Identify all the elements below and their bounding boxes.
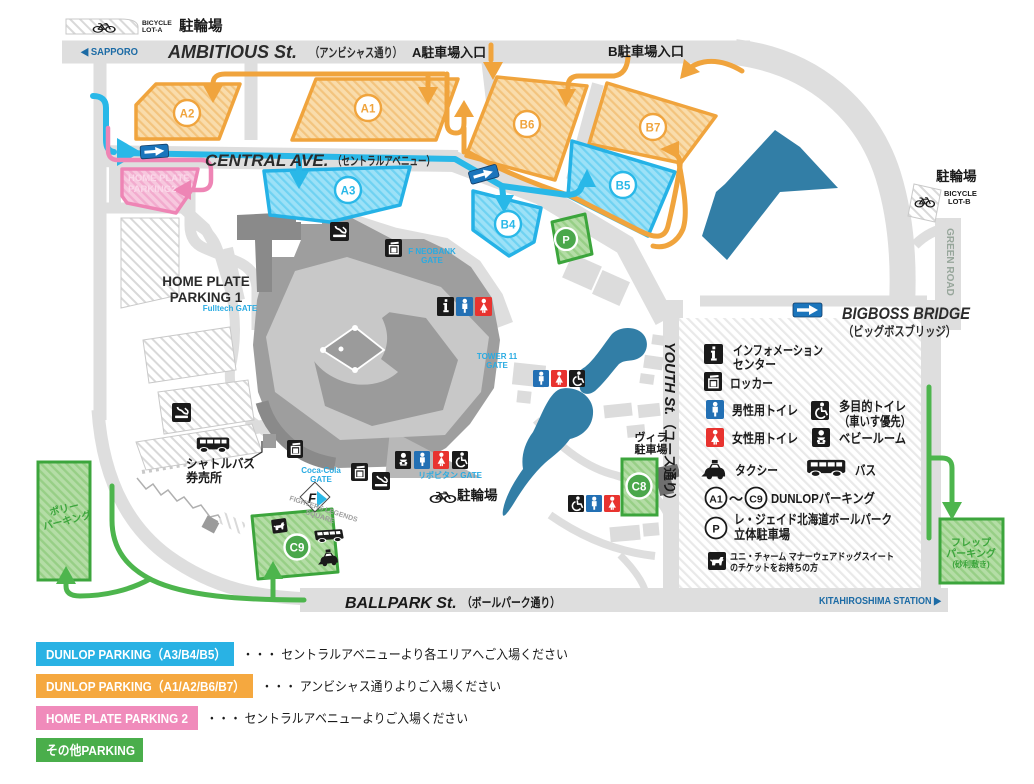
svg-text:GATE: GATE <box>421 256 443 265</box>
svg-text:バス: バス <box>855 463 876 478</box>
svg-text:A2: A2 <box>180 109 195 121</box>
svg-text:（ビッグボスブリッジ）: （ビッグボスブリッジ） <box>843 324 956 339</box>
svg-text:B6: B6 <box>520 120 535 132</box>
svg-text:CENTRAL AVE.: CENTRAL AVE. <box>205 151 328 170</box>
svg-text:センター: センター <box>733 357 776 372</box>
svg-text:駐輪場: 駐輪場 <box>457 487 498 503</box>
svg-text:HOME PLATE PARKING 2: HOME PLATE PARKING 2 <box>46 711 188 726</box>
svg-text:LOT-A: LOT-A <box>142 27 162 34</box>
svg-text:タクシー: タクシー <box>735 463 778 478</box>
svg-text:P: P <box>562 235 569 247</box>
svg-text:（車いす優先）: （車いす優先） <box>839 414 911 429</box>
svg-text:多目的トイレ: 多目的トイレ <box>839 399 906 414</box>
svg-text:（ボールパーク通り）: （ボールパーク通り） <box>462 595 560 610</box>
svg-text:ユニ・チャーム マナーウェアドッグスイート: ユニ・チャーム マナーウェアドッグスイート <box>730 551 894 563</box>
svg-text:券売所: 券売所 <box>185 470 222 485</box>
svg-text:DUNLOP PARKING（A1/A2/B6/B7）: DUNLOP PARKING（A1/A2/B6/B7） <box>46 679 245 694</box>
svg-text:シャトルバス: シャトルバス <box>186 457 255 471</box>
svg-text:A駐車場入口: A駐車場入口 <box>412 45 486 60</box>
svg-text:その他PARKING: その他PARKING <box>46 743 135 758</box>
svg-text:リポビタン GATE: リポビタン GATE <box>418 470 483 480</box>
svg-text:TOWER 11: TOWER 11 <box>477 352 518 361</box>
svg-text:パーキング: パーキング <box>946 547 996 560</box>
svg-text:B4: B4 <box>501 220 516 232</box>
svg-text:・・・ セントラルアベニューよりご入場ください: ・・・ セントラルアベニューよりご入場ください <box>206 711 468 726</box>
svg-text:PARKING 1: PARKING 1 <box>170 290 243 305</box>
svg-text:DUNLOPパーキング: DUNLOPパーキング <box>771 491 875 506</box>
svg-text:YOUTH St.（ユース通り）: YOUTH St.（ユース通り） <box>661 342 677 507</box>
svg-text:駐輪場: 駐輪場 <box>936 168 977 184</box>
svg-text:GATE: GATE <box>310 475 332 484</box>
svg-text:（セントラルアベニュー）: （セントラルアベニュー） <box>333 153 435 168</box>
svg-text:BIGBOSS BRIDGE: BIGBOSS BRIDGE <box>842 305 971 323</box>
svg-text:AMBITIOUS St.: AMBITIOUS St. <box>167 42 297 62</box>
svg-text:HOME PLATE: HOME PLATE <box>128 173 190 184</box>
svg-text:B5: B5 <box>616 181 631 193</box>
svg-text:(砂利敷き): (砂利敷き) <box>952 559 990 569</box>
svg-text:LOT-B: LOT-B <box>948 197 971 206</box>
svg-text:PARKING2: PARKING2 <box>128 184 176 195</box>
svg-text:C9: C9 <box>749 494 763 506</box>
svg-text:GATE: GATE <box>486 361 508 370</box>
svg-text:DUNLOP PARKING（A3/B4/B5）: DUNLOP PARKING（A3/B4/B5） <box>46 647 226 662</box>
svg-text:フレップ: フレップ <box>951 536 992 549</box>
svg-text:A3: A3 <box>341 186 356 198</box>
svg-text:B駐車場入口: B駐車場入口 <box>608 44 684 59</box>
svg-text:C8: C8 <box>632 482 647 494</box>
svg-text:B7: B7 <box>646 123 661 135</box>
svg-text:立体駐車場: 立体駐車場 <box>734 527 790 542</box>
svg-text:BICYCLE: BICYCLE <box>142 20 172 27</box>
svg-text:レ・ジェイド北海道ボールパーク: レ・ジェイド北海道ボールパーク <box>734 512 892 527</box>
svg-text:F NEOBANK: F NEOBANK <box>408 247 456 256</box>
svg-text:KITAHIROSHIMA STATION ▶: KITAHIROSHIMA STATION ▶ <box>819 595 942 607</box>
svg-text:Coca-Cola: Coca-Cola <box>301 466 341 475</box>
svg-text:GREEN ROAD: GREEN ROAD <box>944 228 955 296</box>
svg-text:ロッカー: ロッカー <box>730 376 773 391</box>
svg-text:A1: A1 <box>709 494 723 506</box>
svg-text:BALLPARK St.: BALLPARK St. <box>345 595 457 612</box>
svg-text:ベビールーム: ベビールーム <box>839 431 906 446</box>
svg-text:～: ～ <box>729 491 743 507</box>
svg-text:（アンビシャス通り）: （アンビシャス通り） <box>310 45 402 60</box>
svg-text:駐輪場: 駐輪場 <box>179 17 223 35</box>
svg-text:・・・ セントラルアベニューより各エリアへご入場ください: ・・・ セントラルアベニューより各エリアへご入場ください <box>242 647 568 662</box>
svg-text:Fulltech GATE: Fulltech GATE <box>203 304 258 313</box>
svg-text:C9: C9 <box>290 543 305 555</box>
svg-text:A1: A1 <box>361 104 376 116</box>
svg-text:HOME PLATE: HOME PLATE <box>162 274 250 289</box>
svg-text:女性用トイレ: 女性用トイレ <box>732 431 798 446</box>
svg-text:男性用トイレ: 男性用トイレ <box>732 403 798 418</box>
svg-text:・・・ アンビシャス通りよりご入場ください: ・・・ アンビシャス通りよりご入場ください <box>261 679 501 694</box>
svg-text:P: P <box>712 524 719 536</box>
svg-text:のチケットをお持ちの方: のチケットをお持ちの方 <box>730 562 818 574</box>
svg-text:インフォメーション: インフォメーション <box>733 343 823 358</box>
svg-text:◀ SAPPORO: ◀ SAPPORO <box>80 46 138 58</box>
